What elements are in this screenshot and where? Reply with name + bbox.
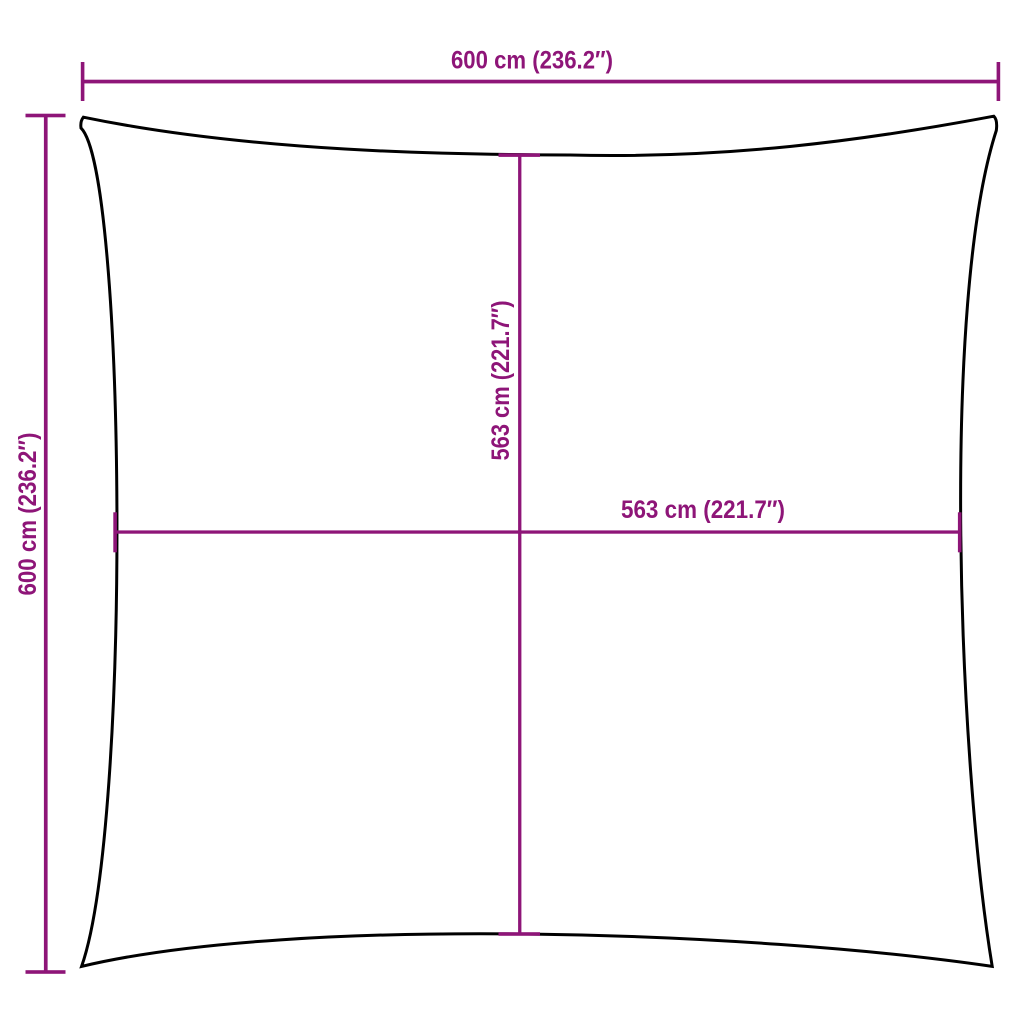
svg-text:563 cm (221.7″): 563 cm (221.7″) [487, 301, 515, 461]
svg-text:600 cm (236.2″): 600 cm (236.2″) [451, 47, 613, 75]
svg-text:600 cm (236.2″): 600 cm (236.2″) [14, 433, 42, 596]
svg-text:563 cm (221.7″): 563 cm (221.7″) [621, 496, 785, 524]
